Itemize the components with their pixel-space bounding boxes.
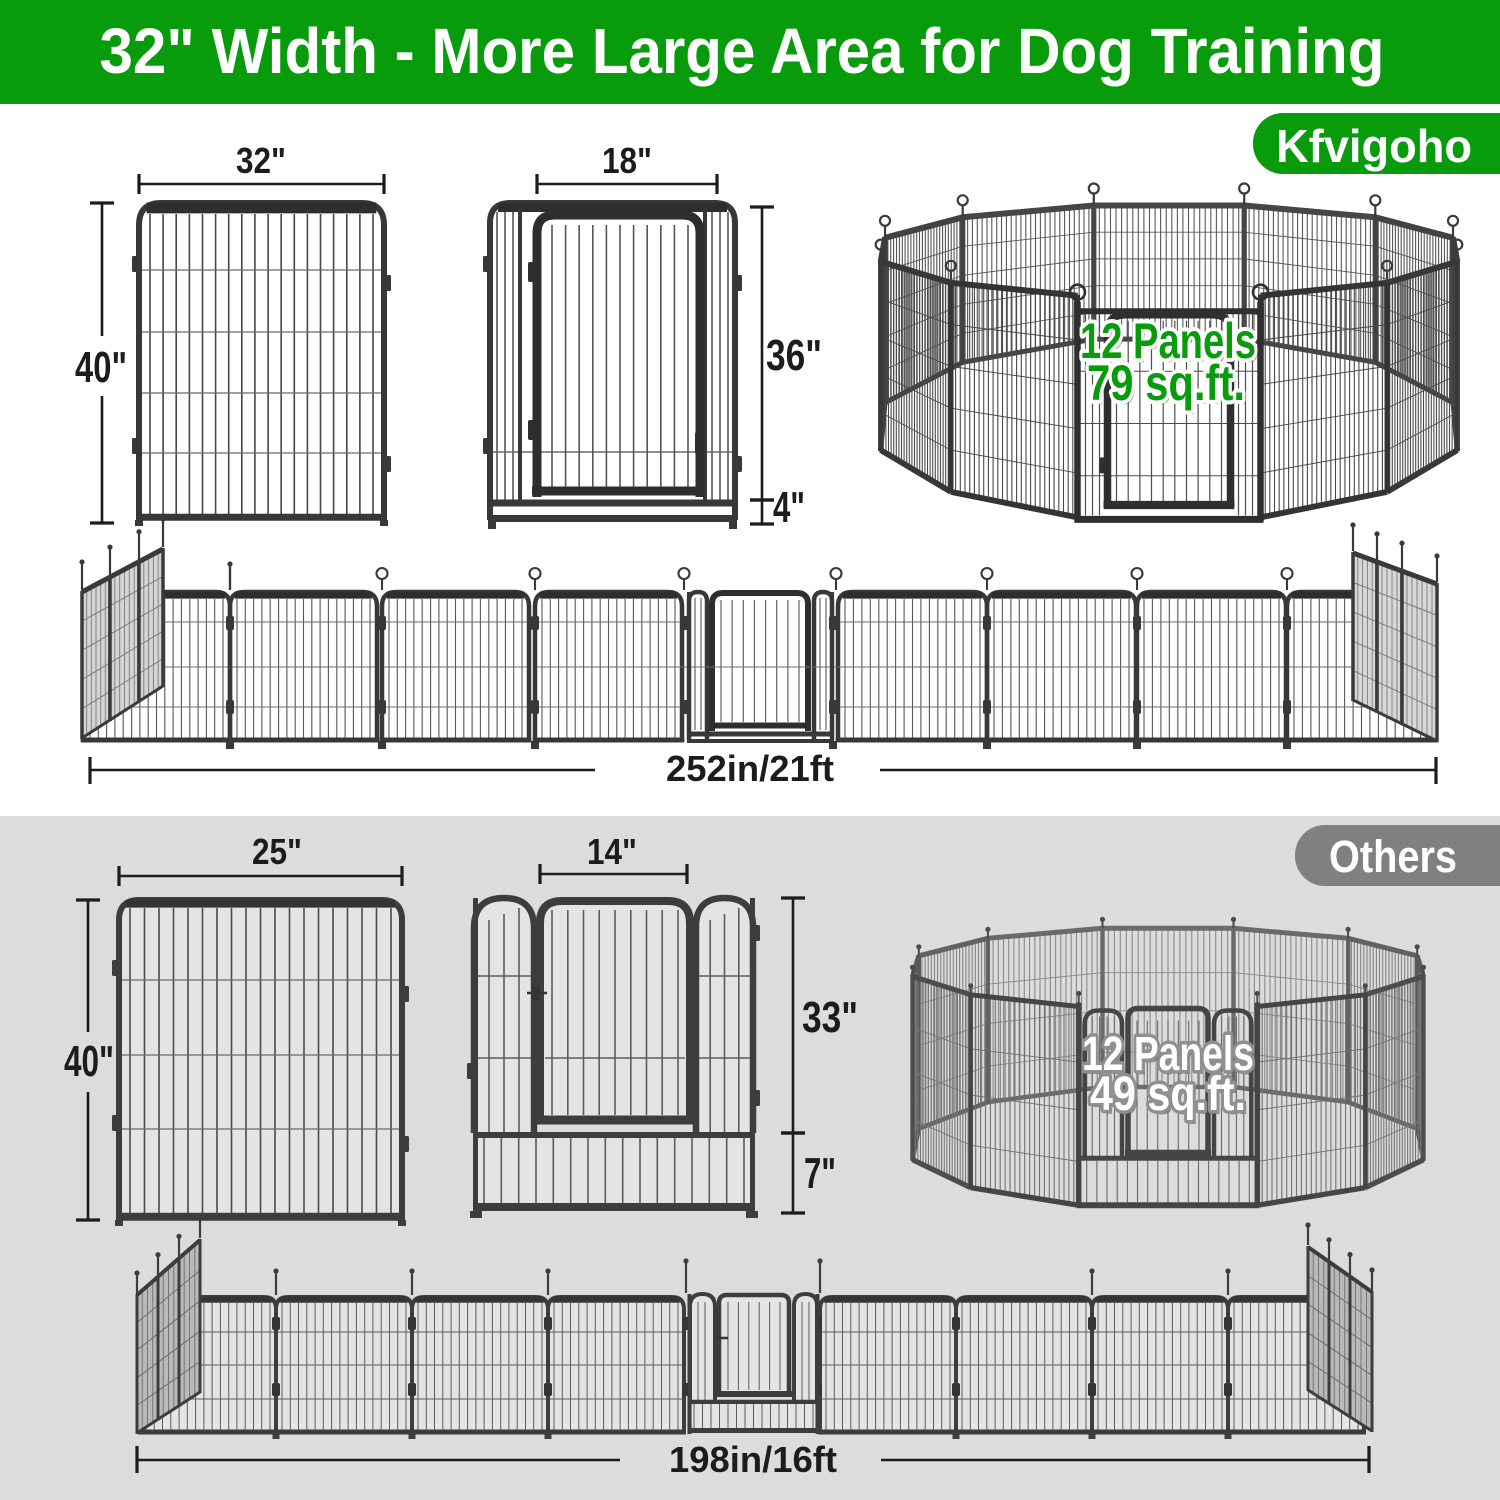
svg-text:40": 40" [75,343,127,392]
svg-text:79 sq.ft.: 79 sq.ft. [1087,355,1245,411]
svg-text:18": 18" [602,140,652,181]
svg-text:40": 40" [64,1037,114,1086]
svg-text:25": 25" [252,831,302,872]
svg-text:7": 7" [804,1149,836,1198]
svg-text:32" Width - More Large Area fo: 32" Width - More Large Area for Dog Trai… [100,15,1385,87]
svg-text:198in/16ft: 198in/16ft [669,1439,837,1480]
svg-text:14": 14" [587,831,637,872]
svg-text:32": 32" [236,140,286,181]
svg-text:36": 36" [766,331,822,380]
svg-text:Others: Others [1329,831,1457,882]
svg-text:252in/21ft: 252in/21ft [666,748,834,789]
svg-text:49 sq.ft.: 49 sq.ft. [1090,1068,1246,1121]
svg-text:33": 33" [802,993,858,1042]
svg-text:Kfvigoho: Kfvigoho [1276,120,1472,172]
svg-text:4": 4" [773,483,805,532]
